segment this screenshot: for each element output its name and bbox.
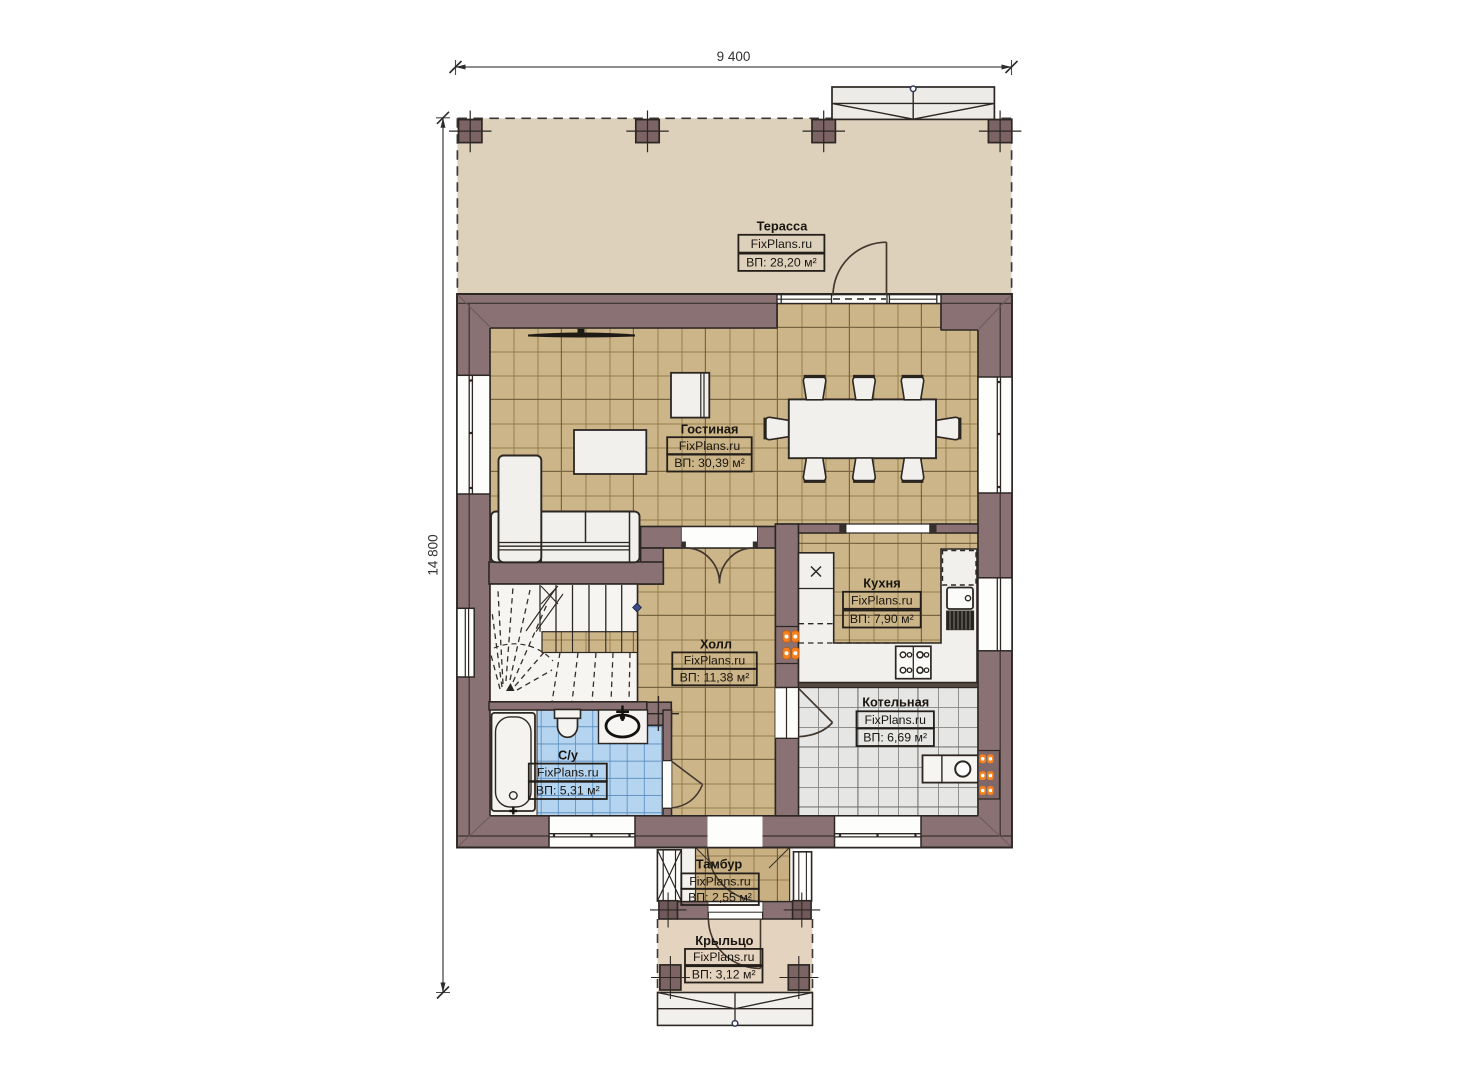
svg-text:FixPlans.ru: FixPlans.ru: [689, 874, 751, 888]
svg-text:Кухня: Кухня: [863, 576, 900, 591]
svg-text:Крыльцо: Крыльцо: [695, 933, 753, 948]
svg-text:FixPlans.ru: FixPlans.ru: [537, 766, 599, 780]
svg-text:ВП: 5,31 м²: ВП: 5,31 м²: [536, 784, 600, 798]
svg-text:14 800: 14 800: [426, 534, 441, 575]
svg-text:9 400: 9 400: [717, 49, 751, 64]
svg-text:Гостиная: Гостиная: [681, 422, 739, 437]
svg-text:ВП: 6,69 м²: ВП: 6,69 м²: [863, 731, 927, 745]
svg-text:ВП: 28,20 м²: ВП: 28,20 м²: [746, 256, 817, 270]
svg-text:FixPlans.ru: FixPlans.ru: [851, 594, 913, 608]
svg-text:FixPlans.ru: FixPlans.ru: [751, 237, 813, 251]
svg-text:Котельная: Котельная: [862, 695, 929, 710]
svg-text:Тамбур: Тамбур: [696, 857, 743, 872]
svg-text:FixPlans.ru: FixPlans.ru: [693, 950, 755, 964]
svg-text:ВП: 2,55 м²: ВП: 2,55 м²: [688, 890, 752, 904]
svg-text:ВП: 11,38 м²: ВП: 11,38 м²: [680, 670, 750, 684]
svg-text:FixPlans.ru: FixPlans.ru: [679, 439, 741, 453]
svg-text:С/у: С/у: [558, 748, 579, 763]
svg-text:ВП: 30,39 м²: ВП: 30,39 м²: [674, 456, 745, 470]
svg-text:FixPlans.ru: FixPlans.ru: [864, 713, 926, 727]
svg-text:Терасса: Терасса: [757, 219, 809, 234]
svg-text:ВП: 3,12 м²: ВП: 3,12 м²: [692, 968, 756, 982]
svg-text:ВП: 7,90 м²: ВП: 7,90 м²: [850, 612, 914, 626]
svg-text:Холл: Холл: [700, 637, 732, 652]
svg-text:FixPlans.ru: FixPlans.ru: [684, 654, 746, 668]
